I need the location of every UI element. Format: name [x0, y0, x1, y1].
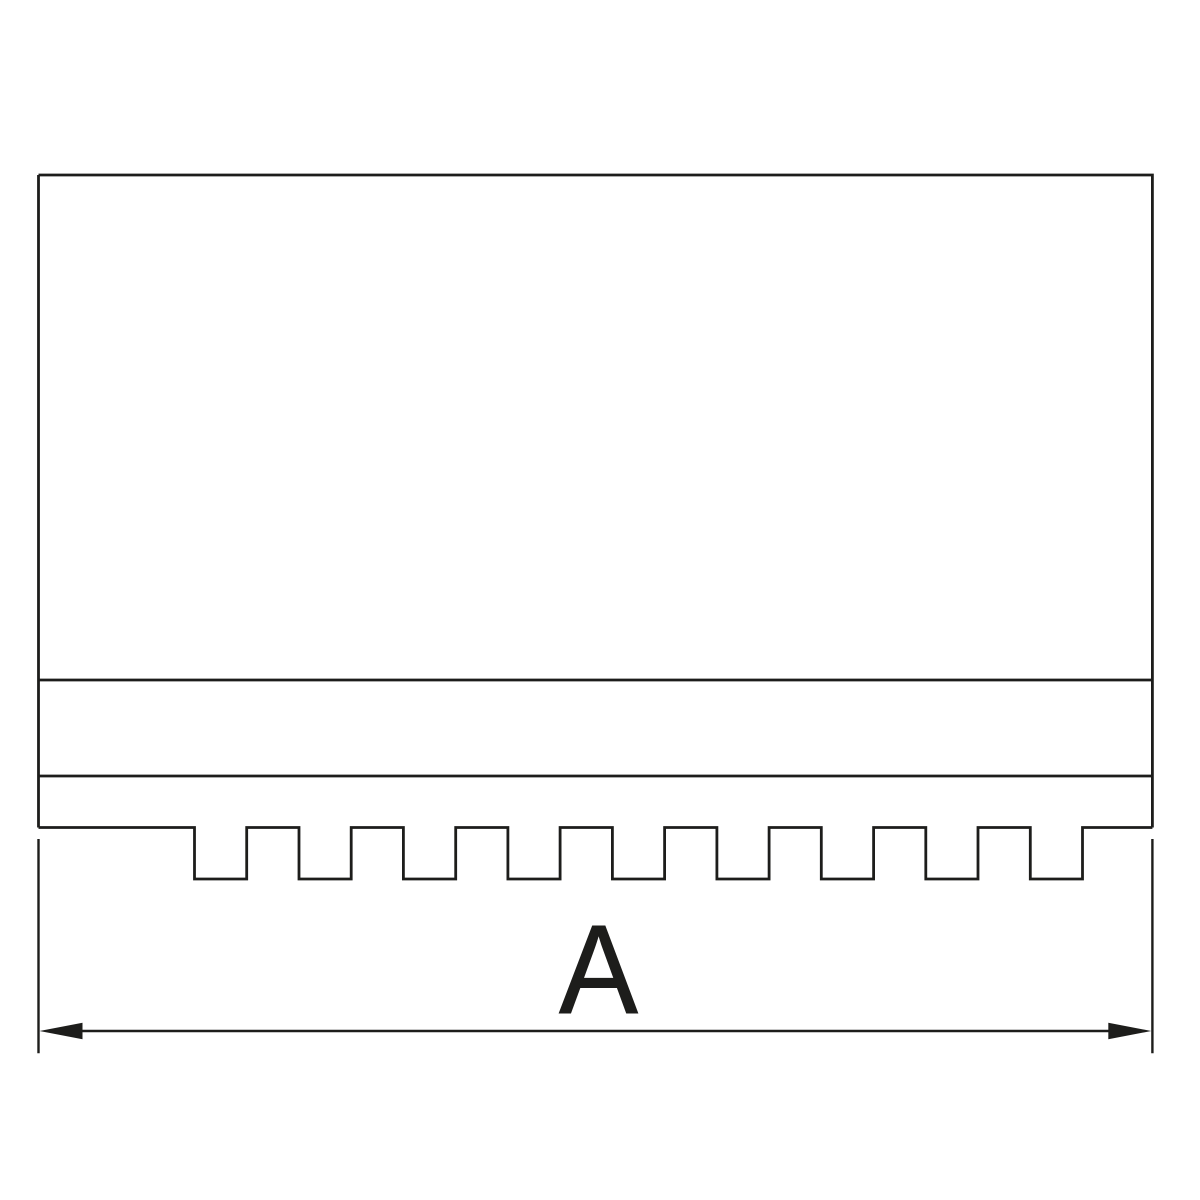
- svg-text:A: A: [559, 899, 638, 1040]
